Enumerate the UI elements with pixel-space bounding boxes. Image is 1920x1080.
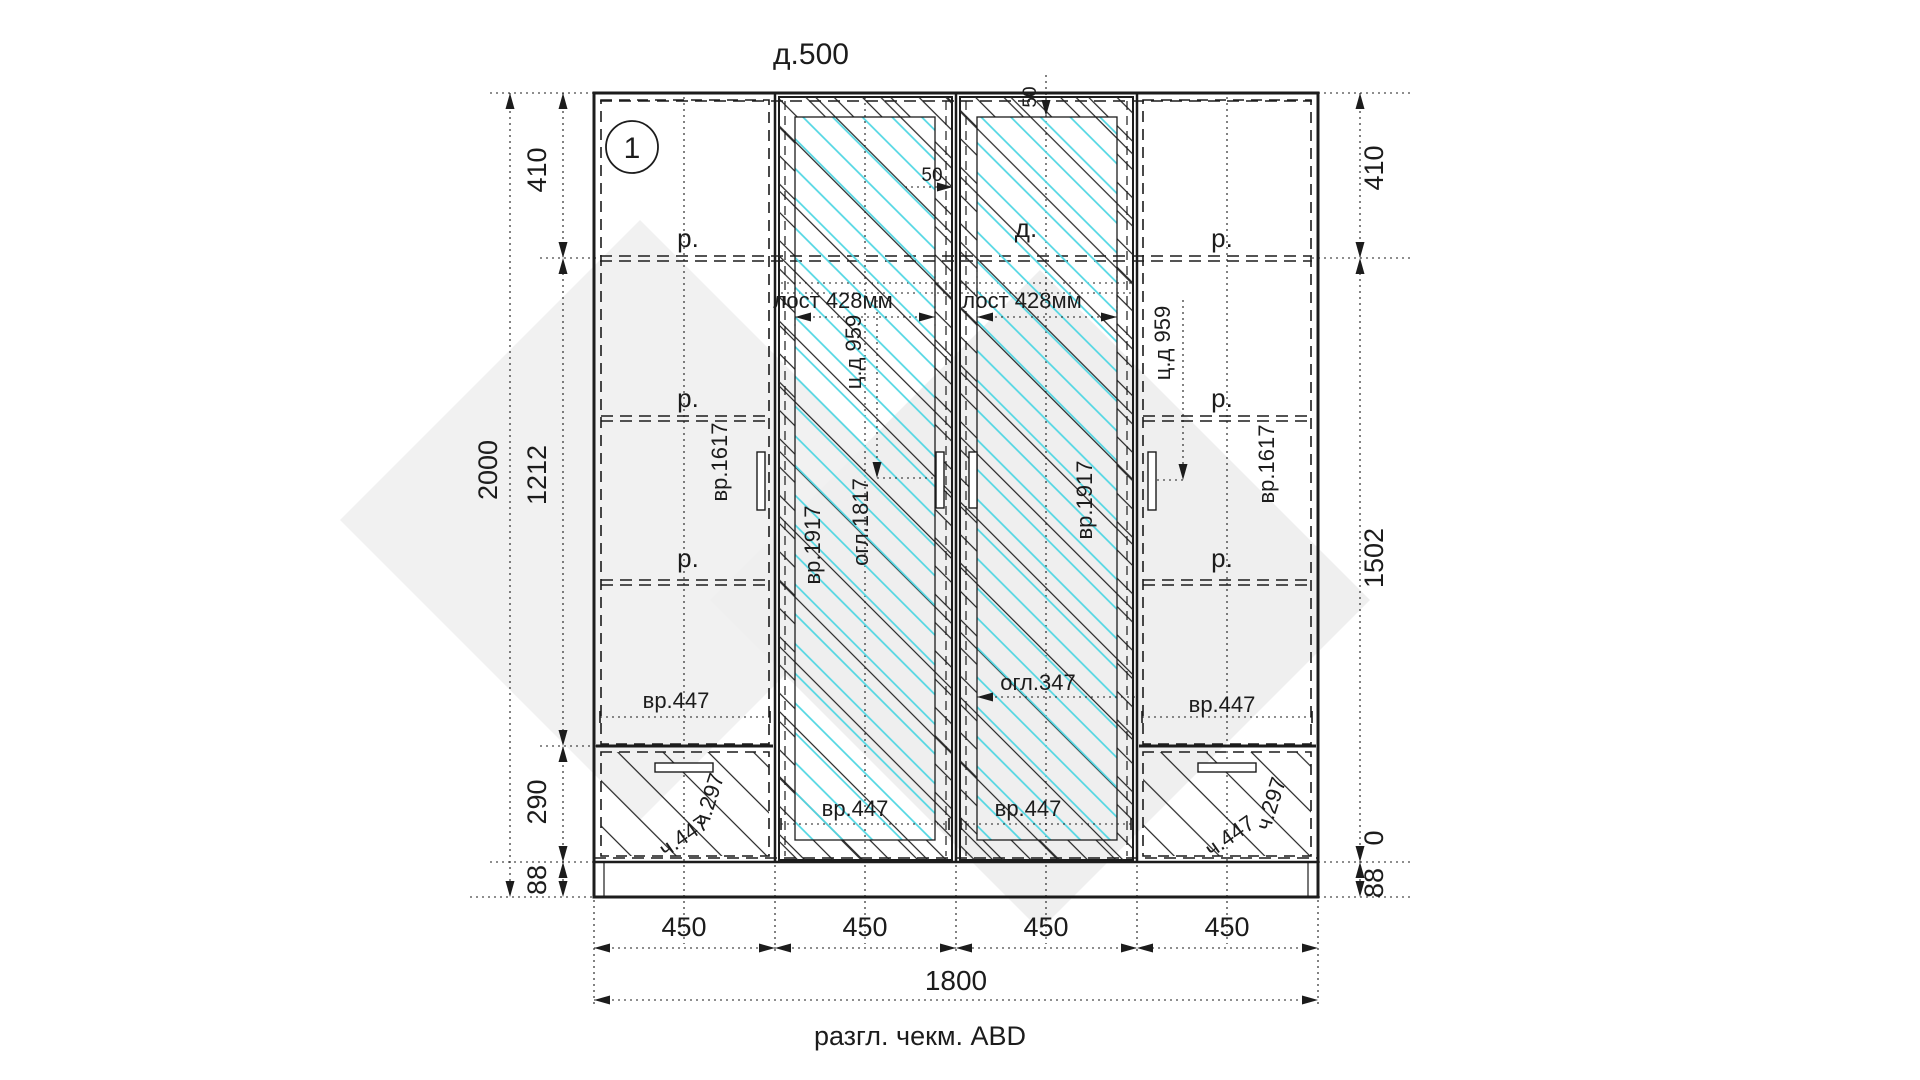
right-dim-lines xyxy=(1312,93,1410,897)
arrow-chain-862u xyxy=(559,862,568,878)
arrow-r-258d xyxy=(1356,242,1365,258)
dim-left-1212: 1212 xyxy=(522,445,552,505)
handle-cc-label-left: ц.д 959 xyxy=(841,315,866,389)
arrow-chain-258d xyxy=(559,242,568,258)
arrow-b-775l xyxy=(759,944,775,953)
arrow-b-775r xyxy=(775,944,791,953)
dim-left-290: 290 xyxy=(522,779,552,824)
door-tall-label-left: вр.1917 xyxy=(800,506,825,585)
door-small-label-left: вр.1617 xyxy=(707,423,732,502)
arrow-r-862d xyxy=(1356,846,1365,862)
shelf-label-l2: р. xyxy=(677,383,699,413)
item-bubble: 1 xyxy=(606,121,658,173)
shelf-label-l3: р. xyxy=(677,543,699,573)
arrow-1800-r xyxy=(1302,996,1318,1005)
door3-handle xyxy=(969,452,977,508)
arrow-b-956l xyxy=(940,944,956,953)
arrow-r-93u xyxy=(1356,93,1365,109)
dim-1800: 1800 xyxy=(925,965,987,996)
arrow-b-956r xyxy=(956,944,972,953)
arrow-chain-862d xyxy=(559,846,568,862)
dim-450-1: 450 xyxy=(661,912,706,942)
offset-50-label-top: 50 xyxy=(921,165,942,186)
arrow-chain-746u xyxy=(559,746,568,762)
shelf-label-r2: р. xyxy=(1211,383,1233,413)
arrow-chain-897d xyxy=(559,881,568,897)
shelf-label-l1: р. xyxy=(677,223,699,253)
offset-50-label-door3: 50 xyxy=(1020,86,1041,107)
arrow-b-1137l xyxy=(1121,944,1137,953)
dim-left-88: 88 xyxy=(522,865,552,895)
drawing-caption: разгл. чекм. ABD xyxy=(814,1021,1026,1051)
dim-450-4: 450 xyxy=(1204,912,1249,942)
shelf-label-r3: р. xyxy=(1211,543,1233,573)
arrow-1800-l xyxy=(594,996,610,1005)
arrow-2000-top xyxy=(506,93,515,109)
dim-left-410: 410 xyxy=(522,147,552,192)
furniture-drawing-page: 1 д.500 р. р. р. р. р. р. д. лост 428мм … xyxy=(0,0,1920,1080)
rail-label-left: лост 428мм xyxy=(773,288,892,313)
dim-right-0: 0 xyxy=(1359,830,1389,845)
arrow-b-1318l xyxy=(1302,944,1318,953)
dim-450-2: 450 xyxy=(842,912,887,942)
arrow-chain-93u xyxy=(559,93,568,109)
dim-450-3: 450 xyxy=(1023,912,1068,942)
door-top-label: д. xyxy=(1015,213,1037,243)
door2-handle xyxy=(936,452,944,508)
bottom-dimensions: 450 450 450 450 1800 разгл. чекм. ABD xyxy=(594,865,1318,1051)
dim-right-1502: 1502 xyxy=(1359,528,1389,588)
shelf-label-r1: р. xyxy=(1211,223,1233,253)
door-small-label-right: вр.1617 xyxy=(1254,425,1279,504)
arrow-b-594r xyxy=(594,944,610,953)
arrow-b-1137r xyxy=(1137,944,1153,953)
rail-label-right: лост 428мм xyxy=(962,288,1081,313)
mirror-width-label: огл.347 xyxy=(1000,670,1075,695)
arrow-chain-258u xyxy=(559,258,568,274)
arrow-2000-bottom xyxy=(506,881,515,897)
wardrobe-elevation-drawing: 1 д.500 р. р. р. р. р. р. д. лост 428мм … xyxy=(0,0,1920,1080)
dim-right-88: 88 xyxy=(1359,868,1389,898)
right-dimensions: 410 1502 0 88 xyxy=(1312,93,1410,898)
front-width-label-door3: вр.447 xyxy=(995,796,1062,821)
right-door-handle xyxy=(1148,452,1156,510)
right-drawer-handle xyxy=(1198,763,1256,772)
door-tall-label-right: вр.1917 xyxy=(1072,461,1097,540)
dim-2000: 2000 xyxy=(473,440,503,500)
mirror-door-right xyxy=(960,97,1133,860)
handle-cc-label-right: ц.д 959 xyxy=(1150,306,1175,380)
front-width-label-sec4: вр.447 xyxy=(1189,692,1256,717)
front-width-label-sec1: вр.447 xyxy=(643,688,710,713)
item-bubble-number: 1 xyxy=(624,132,641,165)
arrow-r-258u xyxy=(1356,258,1365,274)
dim-right-410: 410 xyxy=(1359,145,1389,190)
front-width-label-door2: вр.447 xyxy=(822,796,889,821)
mirror-height-label: огл.1817 xyxy=(848,478,873,566)
left-door-handle xyxy=(757,452,765,510)
drawing-title: д.500 xyxy=(773,38,849,71)
